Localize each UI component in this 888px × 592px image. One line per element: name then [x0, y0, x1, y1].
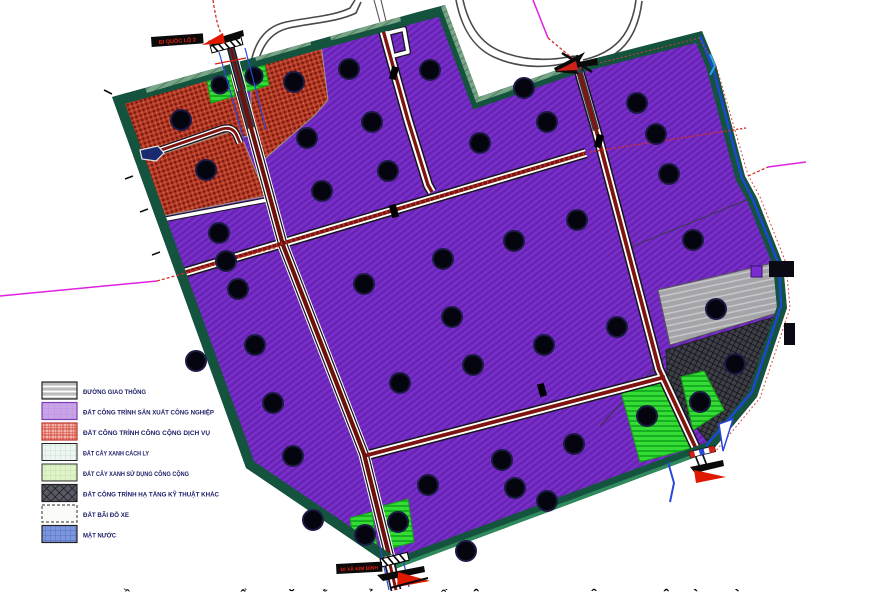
svg-text:ĐƯỜNG GIAO THÔNG: ĐƯỜNG GIAO THÔNG — [83, 387, 146, 396]
svg-text:MẶT NƯỚC: MẶT NƯỚC — [83, 531, 116, 540]
